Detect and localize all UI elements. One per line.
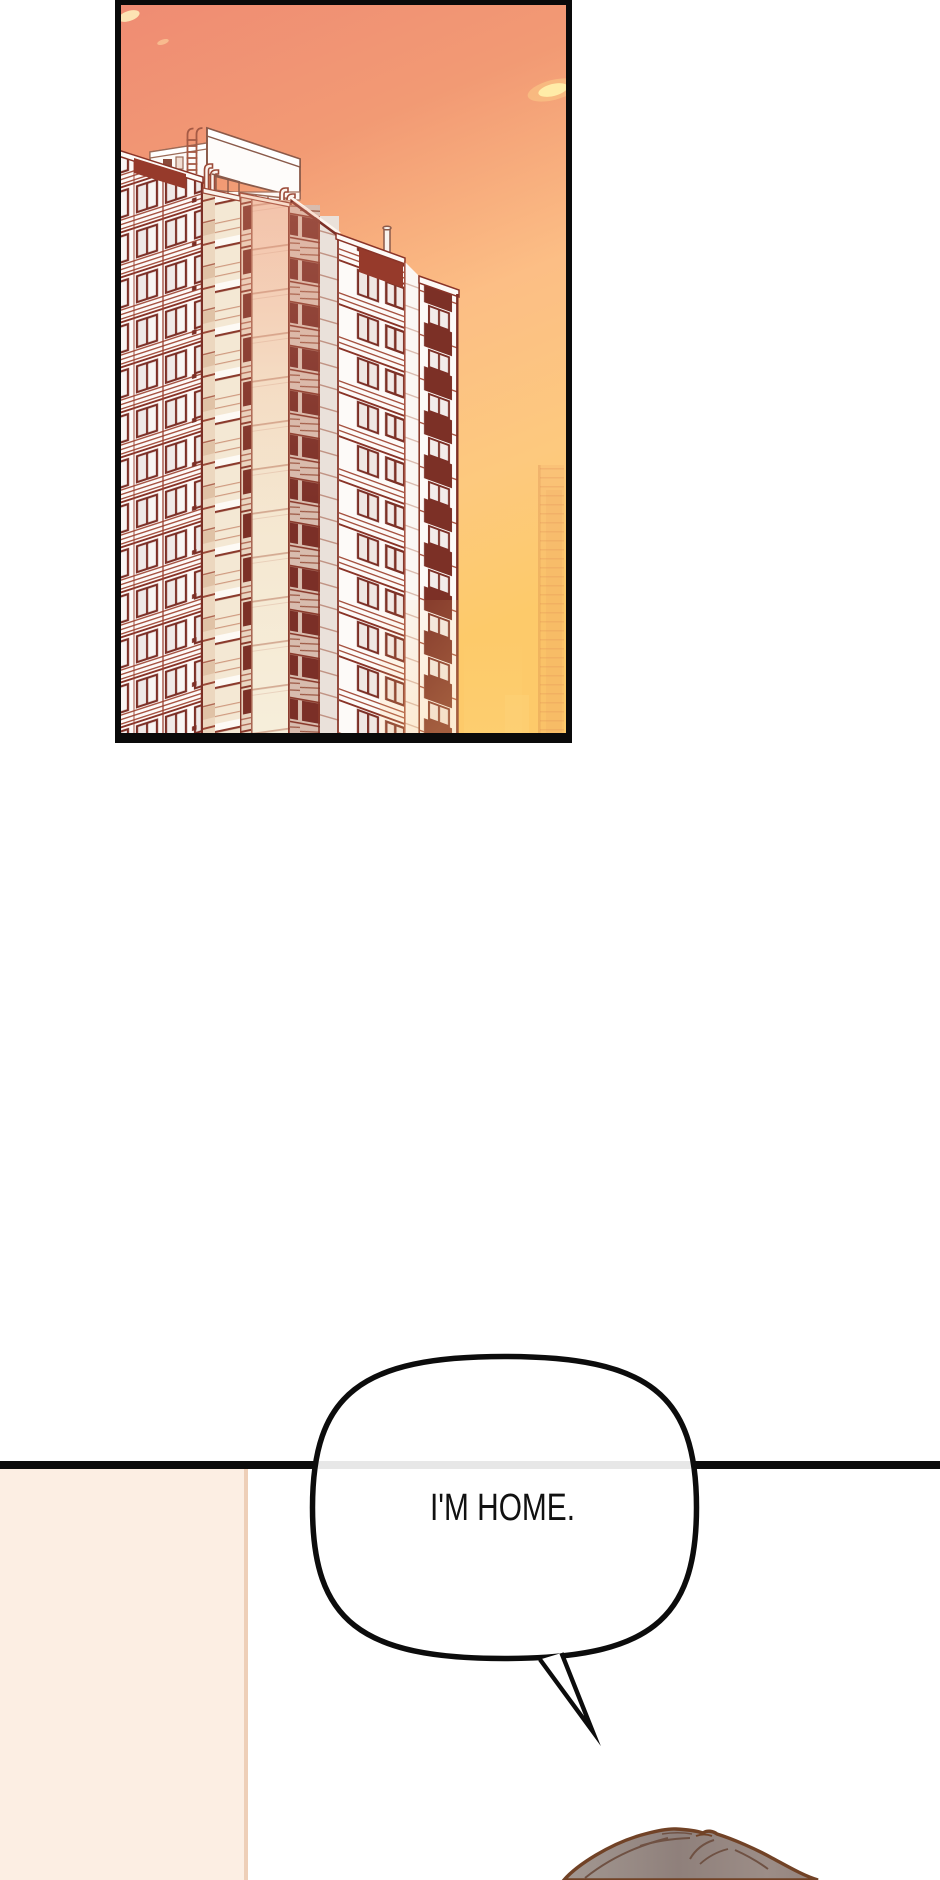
svg-text:I'M HOME.: I'M HOME.	[430, 1487, 575, 1529]
